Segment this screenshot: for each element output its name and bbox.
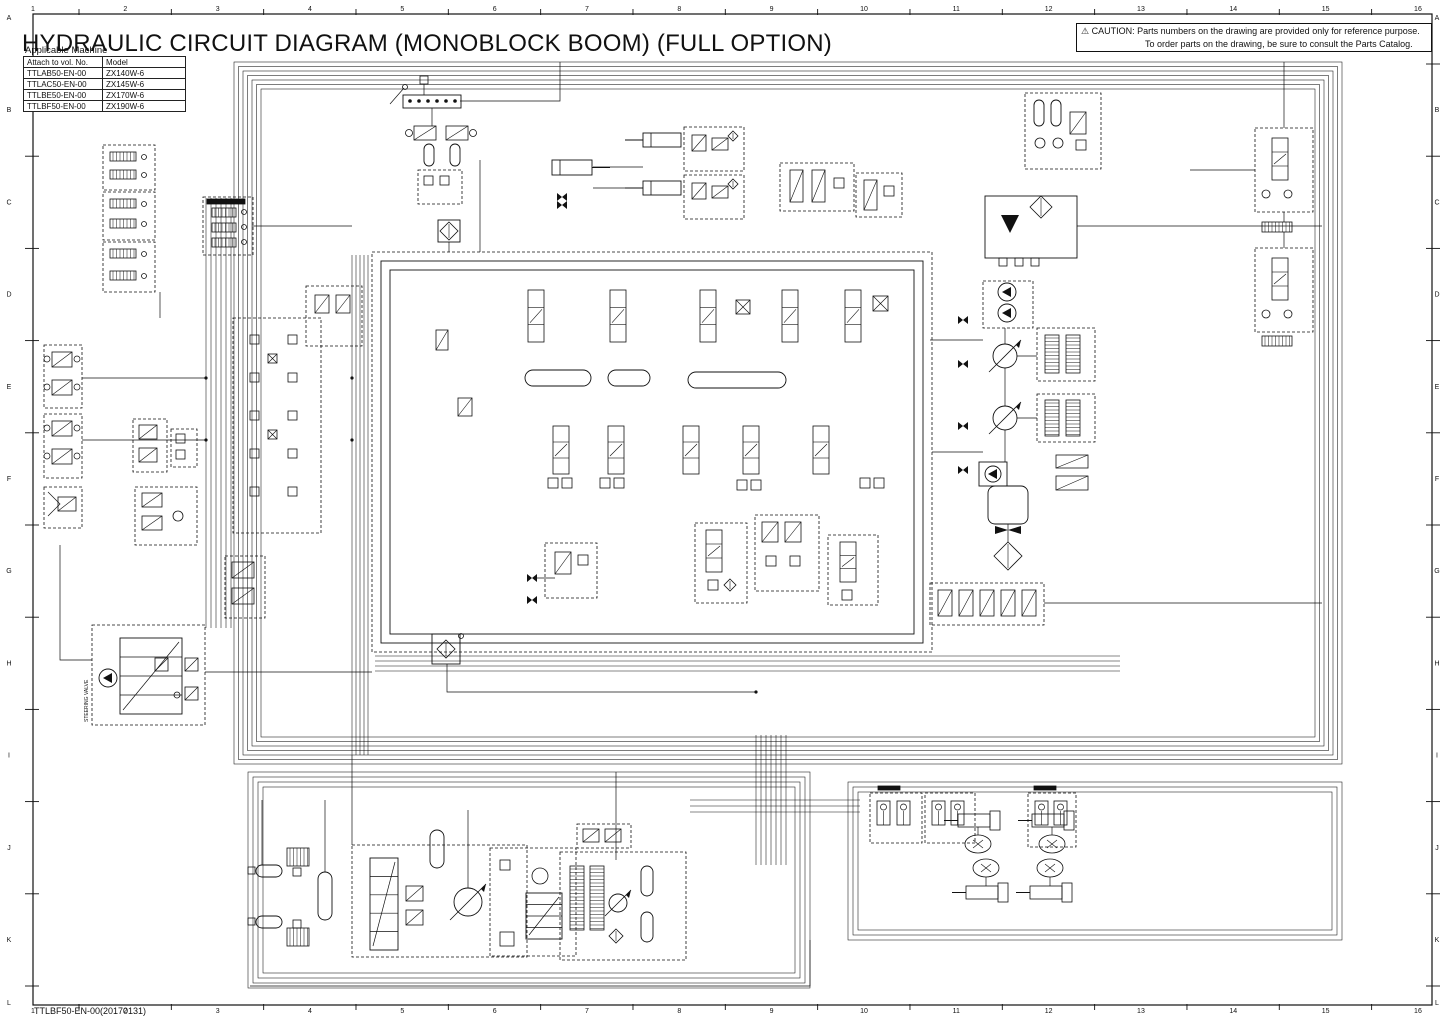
component-group-box [44, 345, 82, 408]
check-valve-icon [527, 596, 532, 604]
component-box [207, 199, 245, 204]
component-group-box [695, 523, 747, 603]
grid-col-label: 14 [1229, 1008, 1237, 1015]
cylinder-symbol [966, 886, 998, 899]
valve-symbol [614, 478, 624, 488]
accumulator-symbol [525, 370, 591, 386]
spool-valve-symbol [815, 444, 827, 456]
hatched-element [1262, 222, 1292, 232]
table-row: TTLAC50-EN-00 ZX145W-6 [24, 79, 186, 90]
warning-icon: ⚠ [1081, 26, 1089, 36]
check-valve-icon [958, 422, 963, 430]
vol-no-cell: TTLAC50-EN-00 [24, 79, 103, 90]
hatched-element [1045, 400, 1059, 436]
vol-no-cell: TTLBE50-EN-00 [24, 90, 103, 101]
check-valve-icon [963, 422, 968, 430]
spool-valve-symbol [555, 444, 567, 456]
col-header-model: Model [103, 57, 186, 68]
valve-symbol [1076, 140, 1086, 150]
spool-valve-symbol [1274, 274, 1286, 284]
valve-symbol [737, 480, 747, 490]
valve-symbol [842, 590, 852, 600]
hatched-element [287, 848, 309, 866]
vol-no-cell: TTLBF50-EN-00 [24, 101, 103, 112]
component-group-box [925, 793, 975, 843]
pipe-bus-lines [252, 80, 1324, 746]
component-group-box [560, 852, 686, 960]
col-header-attach: Attach to vol. No. [24, 57, 103, 68]
grid-row-label: K [1435, 937, 1440, 944]
valve-symbol [500, 932, 514, 946]
junction-dot [754, 690, 757, 693]
port-symbol [453, 99, 457, 103]
check-valve-icon [963, 360, 968, 368]
grid-col-label: 10 [860, 1008, 868, 1015]
valve-symbol [142, 493, 162, 507]
grid-col-label: 1 [31, 6, 35, 13]
pilot-valve-symbol [74, 453, 80, 459]
model-cell: ZX170W-6 [103, 90, 186, 101]
hatched-element [110, 170, 136, 179]
check-valve-icon [963, 316, 968, 324]
caution-box: ⚠ CAUTION: Parts numbers on the drawing … [1076, 23, 1432, 52]
accumulator-symbol [1034, 100, 1044, 126]
valve-symbol [692, 135, 706, 151]
grid-row-label: D [1434, 292, 1439, 299]
grid-row-label: F [1435, 476, 1439, 483]
valve-symbol [315, 295, 329, 313]
valve-symbol [142, 516, 162, 530]
pilot-valve-symbol [44, 356, 50, 362]
doc-number: TTLBF50-EN-00(20170131) [34, 1006, 146, 1016]
pilot-valve-symbol [52, 449, 72, 464]
grid-col-label: 8 [677, 1008, 681, 1015]
valve-symbol [293, 868, 301, 876]
port-symbol [1262, 190, 1270, 198]
hatched-element [110, 199, 136, 208]
component-group-box [103, 242, 155, 292]
grid-col-label: 9 [770, 1008, 774, 1015]
valve-symbol [864, 180, 877, 210]
table-row: TTLBF50-EN-00 ZX190W-6 [24, 101, 186, 112]
grid-col-label: 15 [1322, 6, 1330, 13]
component-group-box [418, 170, 462, 204]
vol-no-cell: TTLAB50-EN-00 [24, 68, 103, 79]
component-group-box [1025, 93, 1101, 169]
junction-dot [350, 438, 353, 441]
valve-symbol [1015, 258, 1023, 266]
valve-symbol [424, 176, 433, 185]
caution-line-1: ⚠ CAUTION: Parts numbers on the drawing … [1081, 25, 1427, 38]
component-group-box [233, 318, 321, 533]
pump-icon [1002, 308, 1011, 318]
pilot-valve-symbol [52, 380, 72, 395]
valve-symbol [1056, 455, 1088, 468]
model-cell: ZX145W-6 [103, 79, 186, 90]
grid-row-label: H [1434, 660, 1439, 667]
grid-row-label: F [7, 476, 11, 483]
port-symbol [532, 868, 548, 884]
component-group-box [306, 286, 362, 346]
accumulator-symbol [424, 144, 434, 166]
valve-symbol [1022, 590, 1036, 616]
valve-symbol [248, 867, 255, 874]
valve-symbol [288, 487, 297, 496]
valve-symbol [884, 186, 894, 196]
valve-symbol [288, 373, 297, 382]
grid-col-label: 3 [216, 6, 220, 13]
valve-symbol [176, 450, 185, 459]
spool-valve-symbol [847, 309, 859, 322]
check-valve-icon [532, 596, 537, 604]
port-symbol [1284, 310, 1292, 318]
port-symbol [1053, 138, 1063, 148]
spool-valve-symbol [784, 309, 796, 322]
grid-row-label: I [1436, 753, 1438, 760]
valve-symbol [436, 330, 448, 350]
valve-symbol [600, 478, 610, 488]
pipe-bus-lines [234, 62, 1342, 764]
grid-col-label: 7 [585, 6, 589, 13]
grid-col-label: 10 [860, 6, 868, 13]
valve-symbol [834, 178, 844, 188]
pipe-bus-lines [253, 777, 805, 983]
component-group-box [352, 845, 527, 957]
grid-row-label: L [7, 1000, 11, 1007]
spool-valve-symbol [612, 309, 624, 322]
junction-dot [204, 438, 207, 441]
grid-col-label: 5 [400, 6, 404, 13]
accumulator-symbol [608, 370, 650, 386]
accumulator-symbol [641, 866, 653, 896]
pilot-valve-symbol [52, 421, 72, 436]
pipe-line [60, 545, 92, 660]
grid-col-label: 8 [677, 6, 681, 13]
grid-col-label: 11 [953, 1008, 960, 1015]
valve-symbol [458, 398, 472, 416]
valve-symbol [874, 478, 884, 488]
check-valve-symbol [881, 804, 887, 810]
fan-icon [1008, 526, 1021, 534]
grid-col-label: 12 [1045, 1008, 1053, 1015]
check-valve-icon [958, 316, 963, 324]
component-group-box [856, 173, 902, 217]
valve-symbol [248, 918, 255, 925]
model-cell: ZX140W-6 [103, 68, 186, 79]
schematic-canvas: STEERING VALVE11223344556677889910101111… [0, 0, 1445, 1021]
check-valve-icon [958, 466, 963, 474]
applicable-machine-caption: Applicable Machine [25, 45, 107, 56]
grid-col-label: 14 [1229, 6, 1237, 13]
pipe-bus-lines [248, 76, 1329, 751]
junction-dot [204, 376, 207, 379]
grid-row-label: E [7, 384, 12, 391]
port-symbol [173, 511, 183, 521]
valve-symbol [185, 687, 198, 700]
valve-symbol [712, 186, 728, 198]
pipe-line [447, 664, 756, 692]
grid-row-label: J [1435, 845, 1439, 852]
valve-symbol [605, 829, 621, 842]
port-symbol [1262, 310, 1270, 318]
drawing-sheet: STEERING VALVE11223344556677889910101111… [0, 0, 1445, 1021]
table-row: TTLBE50-EN-00 ZX170W-6 [24, 90, 186, 101]
accumulator-symbol [430, 830, 444, 868]
hatched-element [287, 928, 309, 946]
grid-row-label: I [8, 753, 10, 760]
cylinder-symbol [998, 883, 1008, 902]
applicable-machine-table: Attach to vol. No. Model TTLAB50-EN-00 Z… [23, 56, 186, 112]
valve-symbol [785, 522, 801, 542]
grid-row-label: J [7, 845, 11, 852]
valve-symbol [751, 480, 761, 490]
port-symbol [142, 155, 147, 160]
port-symbol [426, 99, 430, 103]
check-valve-icon [527, 574, 532, 582]
valve-symbol [58, 497, 76, 511]
valve-symbol [250, 373, 259, 382]
pipe-bus-lines [858, 792, 1332, 930]
grid-row-label: D [6, 292, 11, 299]
component-group-box [171, 429, 197, 467]
table-header-row: Attach to vol. No. Model [24, 57, 186, 68]
port-symbol [408, 99, 412, 103]
spool-valve-symbol [708, 546, 720, 556]
port-symbol [242, 210, 247, 215]
pipe-bus-lines [258, 782, 800, 978]
check-valve-symbol [901, 804, 907, 810]
valve-symbol [440, 176, 449, 185]
check-valve-icon [557, 193, 562, 201]
valve-symbol [555, 552, 571, 574]
component-group-box [1255, 248, 1313, 332]
accumulator-symbol [450, 144, 460, 166]
valve-symbol [406, 886, 423, 901]
grid-row-label: A [7, 15, 12, 22]
hatched-element [570, 866, 584, 930]
variable-pump-icon [450, 884, 486, 920]
table-row: TTLAB50-EN-00 ZX140W-6 [24, 68, 186, 79]
pilot-valve-symbol [74, 425, 80, 431]
pipe-bus-lines [848, 782, 1342, 940]
grid-col-label: 6 [493, 1008, 497, 1015]
component-box [390, 270, 914, 634]
accumulator-symbol [641, 912, 653, 942]
cylinder-symbol [990, 811, 1000, 830]
valve-symbol [1001, 590, 1015, 616]
valve-symbol [790, 556, 800, 566]
port-symbol [444, 99, 448, 103]
grid-col-label: 16 [1414, 1008, 1422, 1015]
grid-col-label: 12 [1045, 6, 1053, 13]
component-group-box [828, 535, 878, 605]
junction-dot [350, 376, 353, 379]
spool-valve-symbol [702, 309, 714, 322]
valve-symbol [938, 590, 952, 616]
port-symbol [142, 274, 147, 279]
valve-symbol [762, 522, 778, 542]
component-box [878, 786, 900, 790]
cylinder-symbol [552, 160, 592, 175]
grid-row-label: E [1435, 384, 1440, 391]
component-group-box [755, 515, 819, 591]
port-symbol [435, 99, 439, 103]
port-symbol [142, 202, 147, 207]
grid-row-label: B [1435, 107, 1440, 114]
spool-valve-symbol [745, 444, 757, 456]
valve-symbol [860, 478, 870, 488]
spool-valve-symbol [1274, 154, 1286, 164]
cylinder-symbol [1062, 883, 1072, 902]
hatched-element [1066, 400, 1080, 436]
hatched-element [1045, 335, 1059, 373]
port-symbol [142, 173, 147, 178]
pilot-valve-symbol [74, 356, 80, 362]
page-title: HYDRAULIC CIRCUIT DIAGRAM (MONOBLOCK BOO… [22, 30, 832, 58]
valve-stack-symbol [373, 862, 395, 946]
pipe-bus-lines [853, 787, 1337, 935]
pipe-line [250, 940, 810, 986]
grid-col-label: 4 [308, 6, 312, 13]
component-group-box [930, 583, 1044, 625]
port-symbol [242, 240, 247, 245]
grid-row-label: G [6, 568, 11, 575]
grid-col-label: 3 [216, 1008, 220, 1015]
valve-symbol [139, 448, 157, 462]
pipe-line [460, 62, 560, 101]
grid-col-label: 7 [585, 1008, 589, 1015]
hatched-element [590, 866, 604, 930]
component-box [985, 196, 1077, 258]
port-symbol [242, 225, 247, 230]
accumulator-symbol [688, 372, 786, 388]
port-symbol [1035, 138, 1045, 148]
component-group-box [870, 793, 922, 843]
valve-symbol [406, 910, 423, 925]
grid-col-label: 11 [953, 6, 960, 13]
spool-valve-symbol [530, 309, 542, 322]
grid-row-label: H [6, 660, 11, 667]
hatched-element [1066, 335, 1080, 373]
tank-triangle-icon [1001, 215, 1019, 233]
hatched-element [1262, 336, 1292, 346]
grid-col-label: 9 [770, 6, 774, 13]
valve-symbol [999, 258, 1007, 266]
hatched-element [110, 152, 136, 161]
valve-symbol [959, 590, 973, 616]
component-group-box [684, 127, 744, 171]
valve-symbol [176, 434, 185, 443]
fan-icon [995, 526, 1008, 534]
engine-symbol [988, 486, 1028, 524]
component-group-box [1255, 128, 1313, 212]
pilot-valve-symbol [74, 384, 80, 390]
grid-col-label: 15 [1322, 1008, 1330, 1015]
pump-icon [103, 673, 112, 683]
caution-text-1: CAUTION: Parts numbers on the drawing ar… [1092, 26, 1420, 36]
valve-symbol [692, 183, 706, 199]
hatched-element [110, 219, 136, 228]
valve-symbol [500, 860, 510, 870]
cylinder-symbol [1030, 886, 1062, 899]
grid-row-label: L [1435, 1000, 1439, 1007]
valve-symbol [548, 478, 558, 488]
check-valve-icon [562, 201, 567, 209]
pilot-valve-symbol [52, 352, 72, 367]
grid-row-label: C [1434, 199, 1439, 206]
caution-line-2: To order parts on the drawing, be sure t… [1145, 38, 1427, 51]
valve-symbol [185, 658, 198, 671]
grid-col-label: 13 [1137, 1008, 1145, 1015]
pipe-line [390, 88, 404, 104]
valve-symbol [712, 138, 728, 150]
grid-row-label: C [6, 199, 11, 206]
valve-symbol [288, 335, 297, 344]
component-box [1034, 786, 1056, 790]
check-valve-symbol [1039, 804, 1045, 810]
component-group-box [490, 848, 576, 956]
grid-col-label: 5 [400, 1008, 404, 1015]
port-symbol [142, 222, 147, 227]
accumulator-symbol [256, 916, 282, 928]
valve-symbol [250, 335, 259, 344]
pipe-bus-lines [263, 787, 795, 973]
valve-symbol [980, 590, 994, 616]
valve-symbol [414, 126, 436, 140]
grid-col-label: 6 [493, 6, 497, 13]
grid-col-label: 4 [308, 1008, 312, 1015]
valve-symbol [1056, 476, 1088, 490]
valve-symbol [336, 295, 350, 313]
grid-col-label: 13 [1137, 6, 1145, 13]
check-valve-icon [958, 360, 963, 368]
accumulator-symbol [318, 872, 332, 920]
check-valve-icon [557, 201, 562, 209]
component-group-box [577, 824, 631, 848]
valve-symbol [139, 425, 157, 439]
valve-symbol [293, 920, 301, 928]
valve-symbol [562, 478, 572, 488]
cylinder-symbol [643, 181, 681, 195]
cylinder-symbol [643, 133, 681, 147]
hatched-element [110, 249, 136, 258]
pump-icon [988, 469, 997, 479]
cylinder-symbol [1064, 811, 1074, 830]
valve-symbol [250, 411, 259, 420]
valve-symbol [790, 170, 803, 202]
pilot-valve-symbol [44, 425, 50, 431]
spool-valve-symbol [685, 444, 697, 456]
valve-symbol [766, 556, 776, 566]
component-group-box [133, 419, 167, 472]
valve-symbol [1031, 258, 1039, 266]
valve-symbol [288, 411, 297, 420]
check-valve-symbol [955, 804, 961, 810]
port-symbol [417, 99, 421, 103]
valve-symbol [250, 487, 259, 496]
port-symbol [470, 130, 477, 137]
valve-symbol [288, 449, 297, 458]
accumulator-symbol [256, 865, 282, 877]
hatched-element [110, 271, 136, 280]
component-group-box [203, 197, 253, 255]
port-symbol [142, 252, 147, 257]
grid-row-label: G [1434, 568, 1439, 575]
check-valve-symbol [1058, 804, 1064, 810]
valve-symbol [812, 170, 825, 202]
valve-symbol [583, 829, 599, 842]
pilot-valve-symbol [44, 453, 50, 459]
